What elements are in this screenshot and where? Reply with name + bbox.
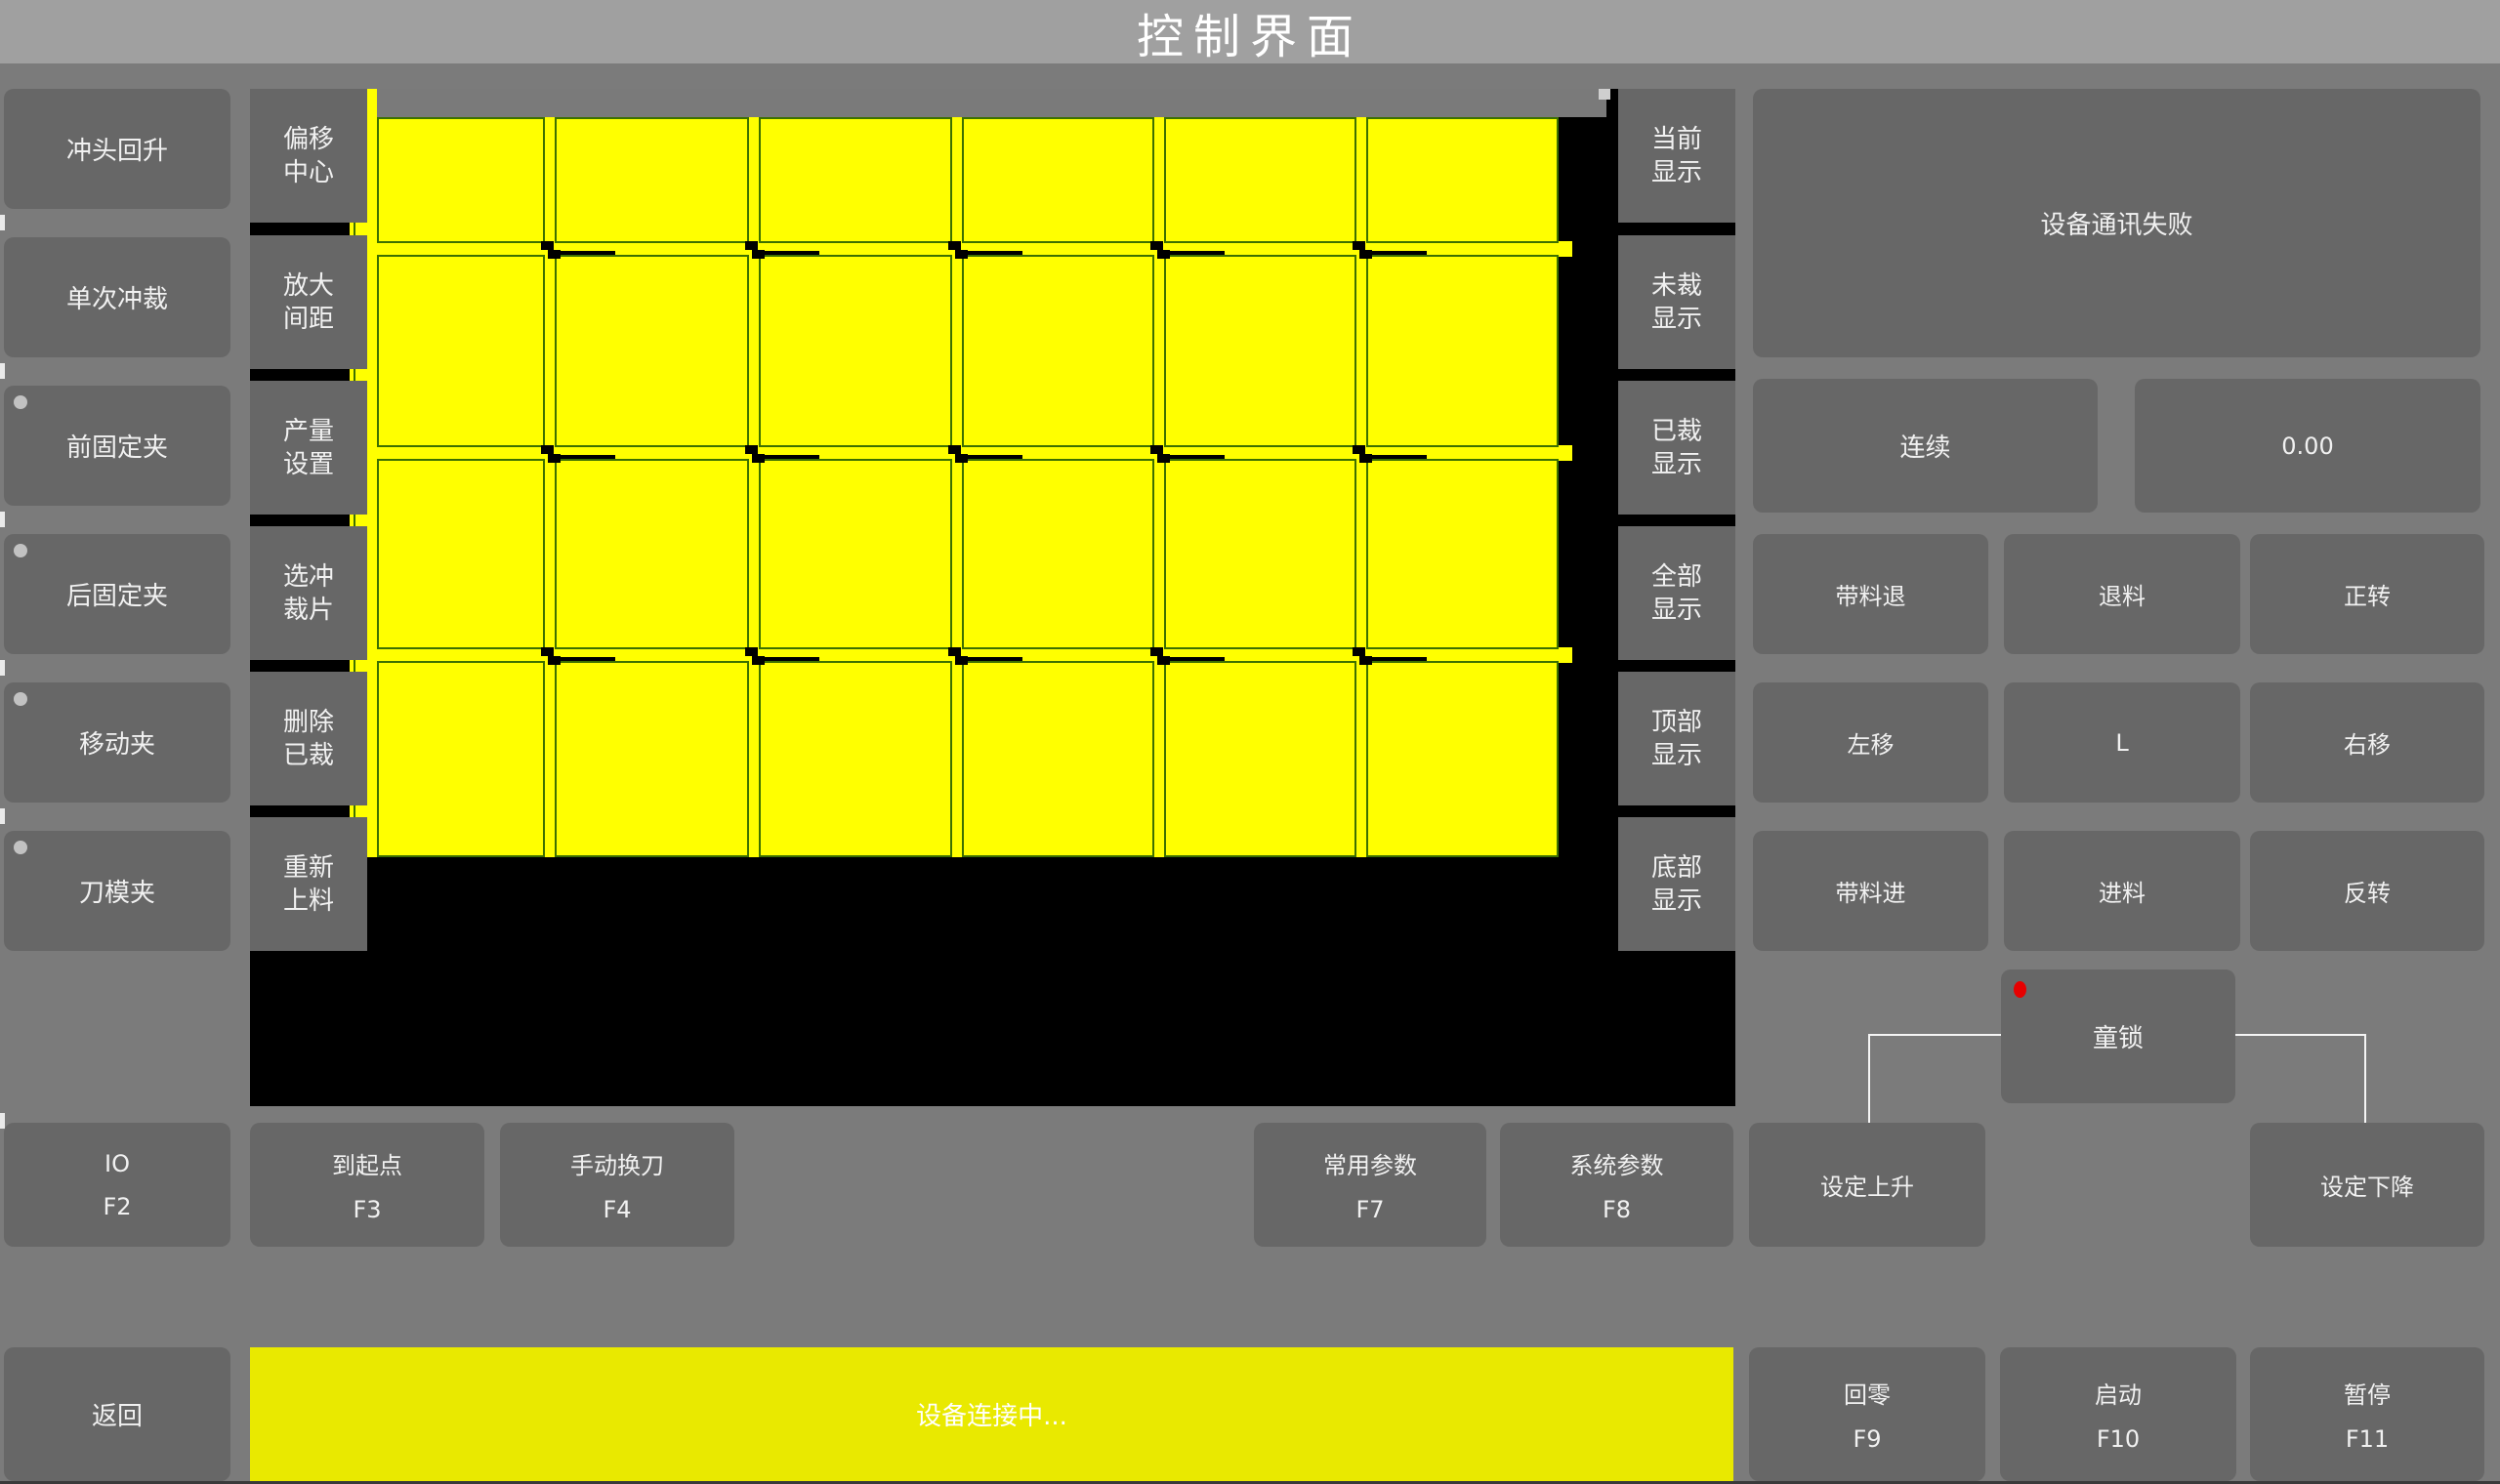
value-display[interactable]: 0.00 (2135, 379, 2480, 513)
function-key-F2[interactable]: IOF2 (4, 1123, 230, 1247)
function-key-label: IO (104, 1150, 130, 1177)
bridge-dash (968, 455, 1022, 459)
bottom-key-F10[interactable]: 启动F10 (2000, 1347, 2236, 1481)
tool-column-separator (250, 515, 350, 526)
bracket-line-right-h (2235, 1034, 2364, 1036)
cut-piece[interactable] (555, 459, 749, 649)
cut-piece[interactable] (1164, 459, 1356, 649)
function-key-code: F2 (103, 1193, 131, 1220)
set-fall-label: 设定下降 (2320, 1168, 2414, 1202)
left-button-1[interactable]: 冲头回升 (4, 89, 230, 209)
bottom-key-label: 暂停 (2344, 1376, 2391, 1410)
tool-column-separator (250, 369, 350, 381)
set-rise-label: 设定上升 (1820, 1168, 1914, 1202)
tool-column-separator-line (354, 369, 355, 381)
bridge-notch (745, 241, 758, 250)
tool-column-separator-line (354, 515, 355, 526)
bridge-notch (541, 647, 554, 656)
tool-button-1[interactable]: 偏移 中心 (250, 89, 367, 223)
tool-button-5[interactable]: 删除 已裁 (250, 672, 367, 805)
bottom-key-code: F9 (1853, 1425, 1881, 1453)
bridge-notch (745, 445, 758, 454)
comm-status-box: 设备通讯失败 (1753, 89, 2480, 357)
tool-column-separator-sheet (350, 515, 367, 526)
comm-status-text: 设备通讯失败 (2040, 205, 2192, 241)
cut-piece[interactable] (1366, 661, 1559, 857)
sheet-right-nub (1559, 445, 1572, 461)
state-indicator-icon (14, 395, 27, 409)
back-button-label: 返回 (92, 1396, 143, 1432)
bridge-notch (1150, 445, 1163, 454)
bridge-notch (1359, 250, 1372, 259)
tool-column-separator-line (354, 223, 355, 235)
cut-piece[interactable] (1164, 117, 1356, 243)
left-button-label: 单次冲裁 (66, 279, 168, 315)
bridge-dash (561, 251, 615, 255)
bottom-key-code: F10 (2097, 1425, 2140, 1453)
bridge-notch (1353, 445, 1365, 454)
bridge-notch (1359, 656, 1372, 665)
function-key-label: 常用参数 (1323, 1146, 1417, 1180)
back-button[interactable]: 返回 (4, 1347, 230, 1481)
bridge-notch (955, 250, 968, 259)
tool-column-separator-sheet (350, 223, 367, 235)
ruler-tick (0, 808, 5, 824)
bridge-notch (1353, 241, 1365, 250)
bridge-notch (1353, 647, 1365, 656)
display-button-2[interactable]: 未裁 显示 (1618, 235, 1735, 369)
cut-piece[interactable] (962, 117, 1154, 243)
tool-button-6[interactable]: 重新 上料 (250, 817, 367, 951)
jog-button-6[interactable]: 右移 (2250, 682, 2484, 803)
ruler-tick (0, 1113, 5, 1129)
function-key-F3[interactable]: 到起点F3 (250, 1123, 484, 1247)
title-bar: 控制界面 (0, 0, 2500, 63)
function-key-code: F3 (353, 1196, 381, 1223)
sheet-right-nub (1559, 647, 1572, 663)
function-key-label: 到起点 (332, 1146, 402, 1180)
bridge-dash (765, 657, 819, 661)
state-indicator-icon (14, 692, 27, 706)
cut-piece[interactable] (962, 661, 1154, 857)
sheet-right-nub (1559, 241, 1572, 257)
display-button-1[interactable]: 当前 显示 (1618, 89, 1735, 223)
bridge-notch (752, 454, 765, 463)
cut-piece[interactable] (555, 255, 749, 447)
bridge-notch (548, 656, 561, 665)
bridge-notch (548, 250, 561, 259)
cut-piece[interactable] (759, 459, 952, 649)
ruler-tick (0, 512, 5, 527)
value-display-text: 0.00 (2281, 433, 2333, 460)
tool-column-separator (250, 805, 350, 817)
bridge-notch (948, 647, 961, 656)
ruler-tick (0, 215, 5, 230)
bridge-notch (955, 656, 968, 665)
jog-button-8[interactable]: 进料 (2004, 831, 2240, 951)
tool-column-separator (250, 660, 350, 672)
bridge-notch (948, 241, 961, 250)
display-button-6[interactable]: 底部 显示 (1618, 817, 1735, 951)
mode-button[interactable]: 连续 (1753, 379, 2098, 513)
bracket-line-left-h (1868, 1034, 2001, 1036)
bridge-dash (1170, 657, 1225, 661)
jog-button-1[interactable]: 带料退 (1753, 534, 1988, 654)
jog-button-7[interactable]: 带料进 (1753, 831, 1988, 951)
tool-column-separator-line (354, 660, 355, 672)
left-button-label: 后固定夹 (66, 576, 168, 612)
left-button-label: 前固定夹 (66, 428, 168, 464)
bottom-key-F9[interactable]: 回零F9 (1749, 1347, 1985, 1481)
state-indicator-icon (14, 544, 27, 557)
bottom-key-F11[interactable]: 暂停F11 (2250, 1347, 2484, 1481)
bridge-dash (1372, 657, 1427, 661)
left-button-label: 刀模夹 (79, 873, 155, 909)
cut-piece[interactable] (555, 661, 749, 857)
cut-piece[interactable] (1366, 459, 1559, 649)
cut-piece[interactable] (377, 459, 545, 649)
left-button-label: 移动夹 (79, 724, 155, 761)
bridge-notch (955, 454, 968, 463)
page-title: 控制界面 (1137, 0, 1363, 66)
bridge-notch (752, 250, 765, 259)
cut-piece[interactable] (962, 255, 1154, 447)
left-button-2[interactable]: 单次冲裁 (4, 237, 230, 357)
function-key-label: 手动换刀 (570, 1146, 664, 1180)
bridge-notch (1150, 241, 1163, 250)
left-button-5[interactable]: 移动夹 (4, 682, 230, 803)
left-button-3[interactable]: 前固定夹 (4, 386, 230, 506)
cut-piece[interactable] (377, 117, 545, 243)
bridge-dash (561, 657, 615, 661)
bridge-notch (752, 656, 765, 665)
jog-button-3[interactable]: 正转 (2250, 534, 2484, 654)
cut-preview-canvas (250, 89, 1735, 1106)
tool-button-2[interactable]: 放大 间距 (250, 235, 367, 369)
child-lock-button[interactable]: 童锁 (2001, 969, 2235, 1103)
function-key-F8[interactable]: 系统参数F8 (1500, 1123, 1733, 1247)
scroll-thumb (1599, 89, 1610, 100)
bridge-dash (765, 455, 819, 459)
cut-piece[interactable] (1164, 661, 1356, 857)
tool-column-separator (250, 223, 350, 235)
bridge-notch (745, 647, 758, 656)
bridge-notch (1157, 454, 1170, 463)
display-button-3[interactable]: 已裁 显示 (1618, 381, 1735, 515)
bottom-key-label: 启动 (2095, 1376, 2142, 1410)
tool-column-separator-sheet (350, 369, 367, 381)
cut-piece[interactable] (1366, 255, 1559, 447)
connection-status-text: 设备连接中... (916, 1396, 1067, 1432)
tool-column-separator-line (354, 805, 355, 817)
bridge-dash (1372, 455, 1427, 459)
bridge-notch (548, 454, 561, 463)
set-fall-button[interactable]: 设定下降 (2250, 1123, 2484, 1247)
tool-column-separator-sheet (350, 660, 367, 672)
bottom-key-code: F11 (2346, 1425, 2389, 1453)
connection-status-bar: 设备连接中... (250, 1347, 1733, 1481)
bracket-line-left-v (1868, 1034, 1870, 1123)
bridge-notch (541, 445, 554, 454)
bridge-notch (1157, 656, 1170, 665)
cut-piece[interactable] (1164, 255, 1356, 447)
sheet-top-margin (367, 89, 1606, 117)
cut-piece[interactable] (759, 255, 952, 447)
function-key-code: F4 (603, 1196, 631, 1223)
function-key-F4[interactable]: 手动换刀F4 (500, 1123, 734, 1247)
function-key-code: F7 (1355, 1196, 1384, 1223)
mode-button-label: 连续 (1899, 428, 1950, 464)
cut-piece[interactable] (962, 459, 1154, 649)
tool-button-4[interactable]: 选冲 裁片 (250, 526, 367, 660)
ruler-tick (0, 363, 5, 379)
cut-piece[interactable] (759, 117, 952, 243)
left-button-4[interactable]: 后固定夹 (4, 534, 230, 654)
bridge-notch (541, 241, 554, 250)
bridge-dash (765, 251, 819, 255)
sheet-edge-strip (367, 89, 377, 117)
set-rise-button[interactable]: 设定上升 (1749, 1123, 1985, 1247)
bridge-dash (968, 657, 1022, 661)
jog-button-4[interactable]: 左移 (1753, 682, 1988, 803)
left-button-6[interactable]: 刀模夹 (4, 831, 230, 951)
cut-piece[interactable] (555, 117, 749, 243)
bridge-notch (1150, 647, 1163, 656)
bridge-notch (1157, 250, 1170, 259)
bridge-dash (968, 251, 1022, 255)
state-indicator-icon (14, 841, 27, 854)
child-lock-label: 童锁 (2093, 1018, 2144, 1054)
bridge-notch (1359, 454, 1372, 463)
bridge-notch (948, 445, 961, 454)
left-button-label: 冲头回升 (66, 131, 168, 167)
bridge-dash (1372, 251, 1427, 255)
cut-piece[interactable] (377, 255, 545, 447)
child-lock-indicator-icon (2014, 981, 2026, 998)
tool-button-3[interactable]: 产量 设置 (250, 381, 367, 515)
display-button-4[interactable]: 全部 显示 (1618, 526, 1735, 660)
function-key-F7[interactable]: 常用参数F7 (1254, 1123, 1486, 1247)
cut-piece[interactable] (1366, 117, 1559, 243)
control-screen: 控制界面 冲头回升单次冲裁前固定夹后固定夹移动夹刀模夹 偏移 中心放大 间距产量… (0, 0, 2500, 1484)
ruler-tick (0, 660, 5, 676)
jog-button-2[interactable]: 退料 (2004, 534, 2240, 654)
bridge-dash (1170, 455, 1225, 459)
jog-button-5[interactable]: L (2004, 682, 2240, 803)
jog-button-9[interactable]: 反转 (2250, 831, 2484, 951)
cut-piece[interactable] (759, 661, 952, 857)
function-key-label: 系统参数 (1570, 1146, 1664, 1180)
cut-piece[interactable] (377, 661, 545, 857)
display-button-5[interactable]: 顶部 显示 (1618, 672, 1735, 805)
bridge-dash (561, 455, 615, 459)
tool-column-separator-sheet (350, 805, 367, 817)
bridge-dash (1170, 251, 1225, 255)
bracket-line-right-v (2364, 1034, 2366, 1123)
bottom-key-label: 回零 (1844, 1376, 1891, 1410)
function-key-code: F8 (1603, 1196, 1631, 1223)
